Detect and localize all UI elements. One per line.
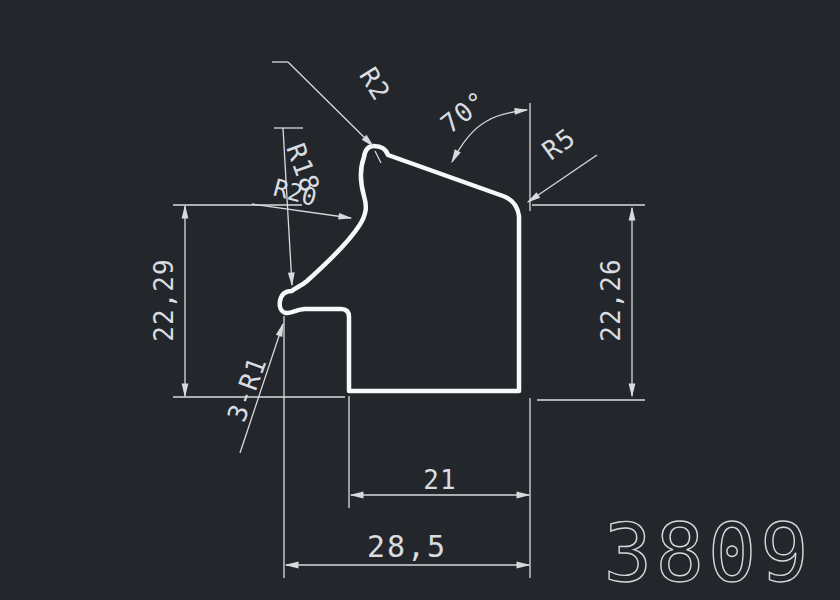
cad-drawing-canvas: R2 R18 R20 70° R5 3-R1 22,29 22,26 21 28… (0, 0, 840, 600)
profile-number-text: 3809 (604, 507, 813, 600)
cad-drawing-svg: R2 R18 R20 70° R5 3-R1 22,29 22,26 21 28… (0, 0, 840, 600)
dim-height-right: 22,26 (596, 258, 626, 341)
dim-height-left: 22,29 (149, 258, 179, 341)
dim-width-inner: 21 (423, 465, 456, 495)
dim-width-total: 28,5 (367, 529, 447, 564)
